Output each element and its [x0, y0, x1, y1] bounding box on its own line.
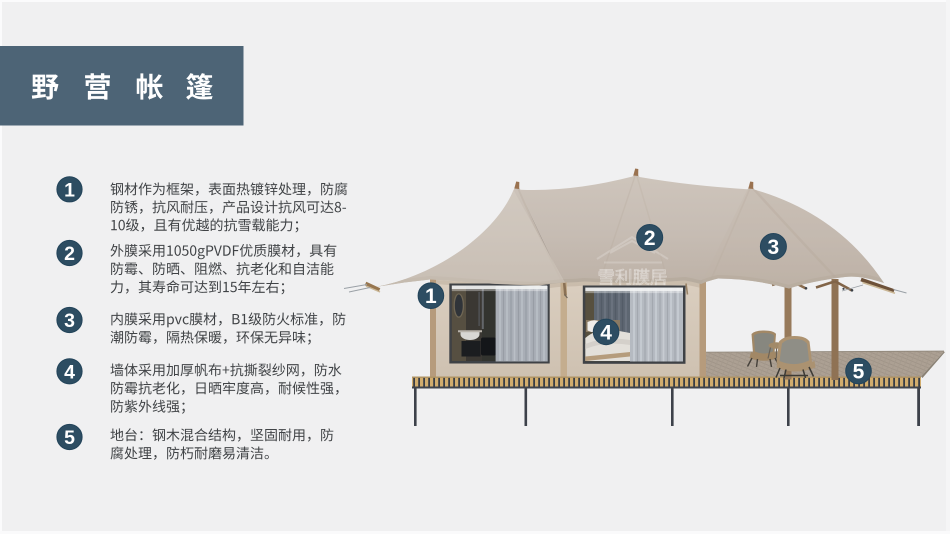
svg-text:3: 3 — [64, 310, 75, 332]
svg-text:4: 4 — [64, 361, 75, 383]
svg-text:3: 3 — [768, 236, 780, 259]
svg-text:2: 2 — [64, 243, 75, 265]
svg-text:1: 1 — [425, 285, 437, 308]
svg-text:4: 4 — [600, 321, 612, 344]
svg-text:5: 5 — [64, 427, 75, 449]
svg-text:2: 2 — [644, 227, 656, 250]
svg-text:1: 1 — [64, 179, 75, 201]
svg-text:5: 5 — [853, 361, 865, 384]
